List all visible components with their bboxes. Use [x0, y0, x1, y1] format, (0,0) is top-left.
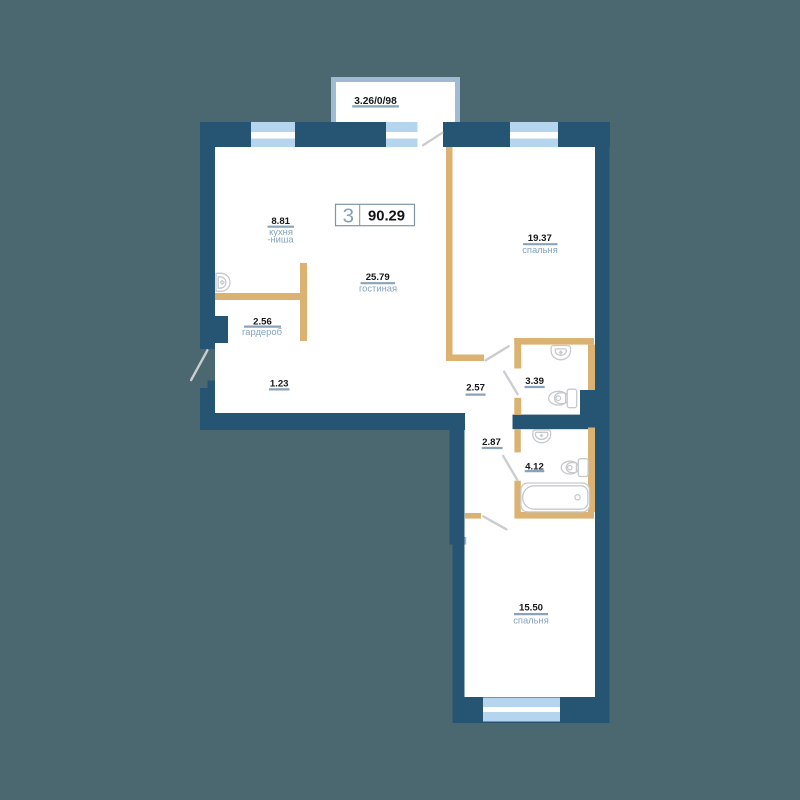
svg-text:гардероб: гардероб: [242, 326, 282, 337]
svg-text:90.29: 90.29: [368, 209, 405, 225]
svg-text:2.57: 2.57: [466, 383, 485, 394]
svg-text:спальня: спальня: [522, 244, 558, 255]
svg-text:спальня: спальня: [513, 614, 549, 625]
svg-text:гостиная: гостиная: [359, 283, 397, 294]
svg-text:15.50: 15.50: [519, 603, 543, 614]
svg-text:3.26/0/98: 3.26/0/98: [354, 96, 397, 107]
svg-text:3: 3: [343, 204, 354, 227]
svg-text:2.87: 2.87: [482, 437, 501, 448]
svg-text:3.39: 3.39: [525, 376, 544, 387]
svg-text:19.37: 19.37: [528, 233, 552, 244]
svg-text:25.79: 25.79: [366, 272, 390, 283]
svg-text:-ниша: -ниша: [267, 234, 294, 245]
svg-text:4.12: 4.12: [525, 461, 544, 472]
svg-text:1.23: 1.23: [270, 379, 289, 390]
